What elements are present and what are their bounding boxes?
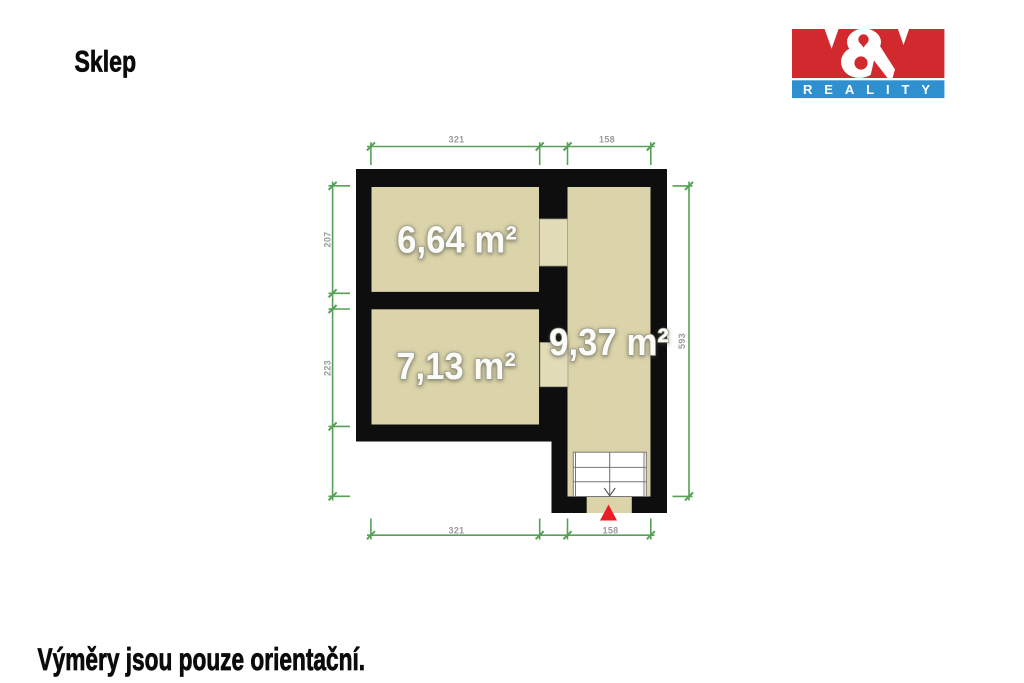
svg-text:7,13 m²: 7,13 m²: [396, 345, 516, 388]
svg-text:223: 223: [323, 360, 333, 376]
svg-text:593: 593: [677, 333, 687, 349]
svg-text:321: 321: [449, 135, 465, 145]
svg-text:207: 207: [323, 232, 333, 248]
svg-text:321: 321: [449, 526, 465, 536]
svg-text:Sklep: Sklep: [75, 45, 137, 79]
svg-text:158: 158: [603, 526, 619, 536]
svg-text:9,37 m²: 9,37 m²: [549, 321, 669, 364]
svg-text:6,64 m²: 6,64 m²: [397, 218, 517, 261]
svg-text:REALITY: REALITY: [803, 82, 942, 97]
svg-text:Výměry jsou pouze orientační.: Výměry jsou pouze orientační.: [38, 641, 366, 677]
svg-text:158: 158: [599, 135, 615, 145]
